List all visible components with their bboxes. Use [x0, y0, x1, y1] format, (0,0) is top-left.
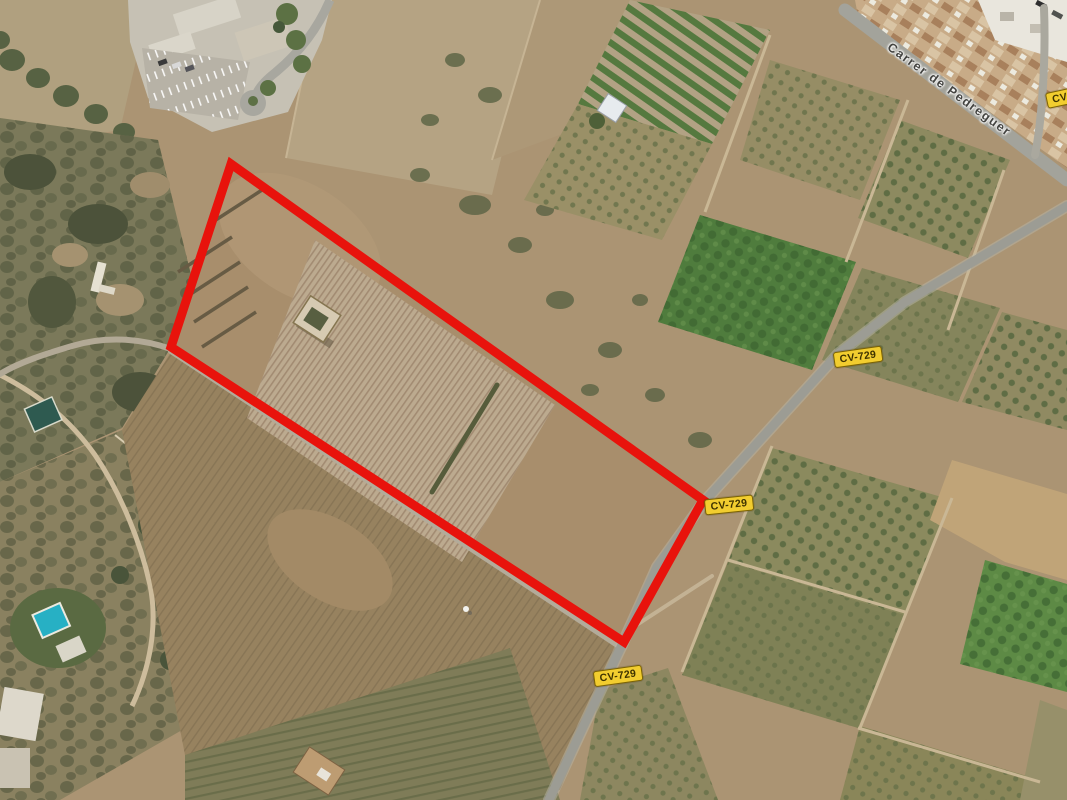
vehicle-speck: [463, 606, 469, 612]
satellite-imagery: [0, 0, 1067, 800]
satellite-map-viewport[interactable]: Carrer de Pedreguer CV-729 CV-729 CV-729…: [0, 0, 1067, 800]
